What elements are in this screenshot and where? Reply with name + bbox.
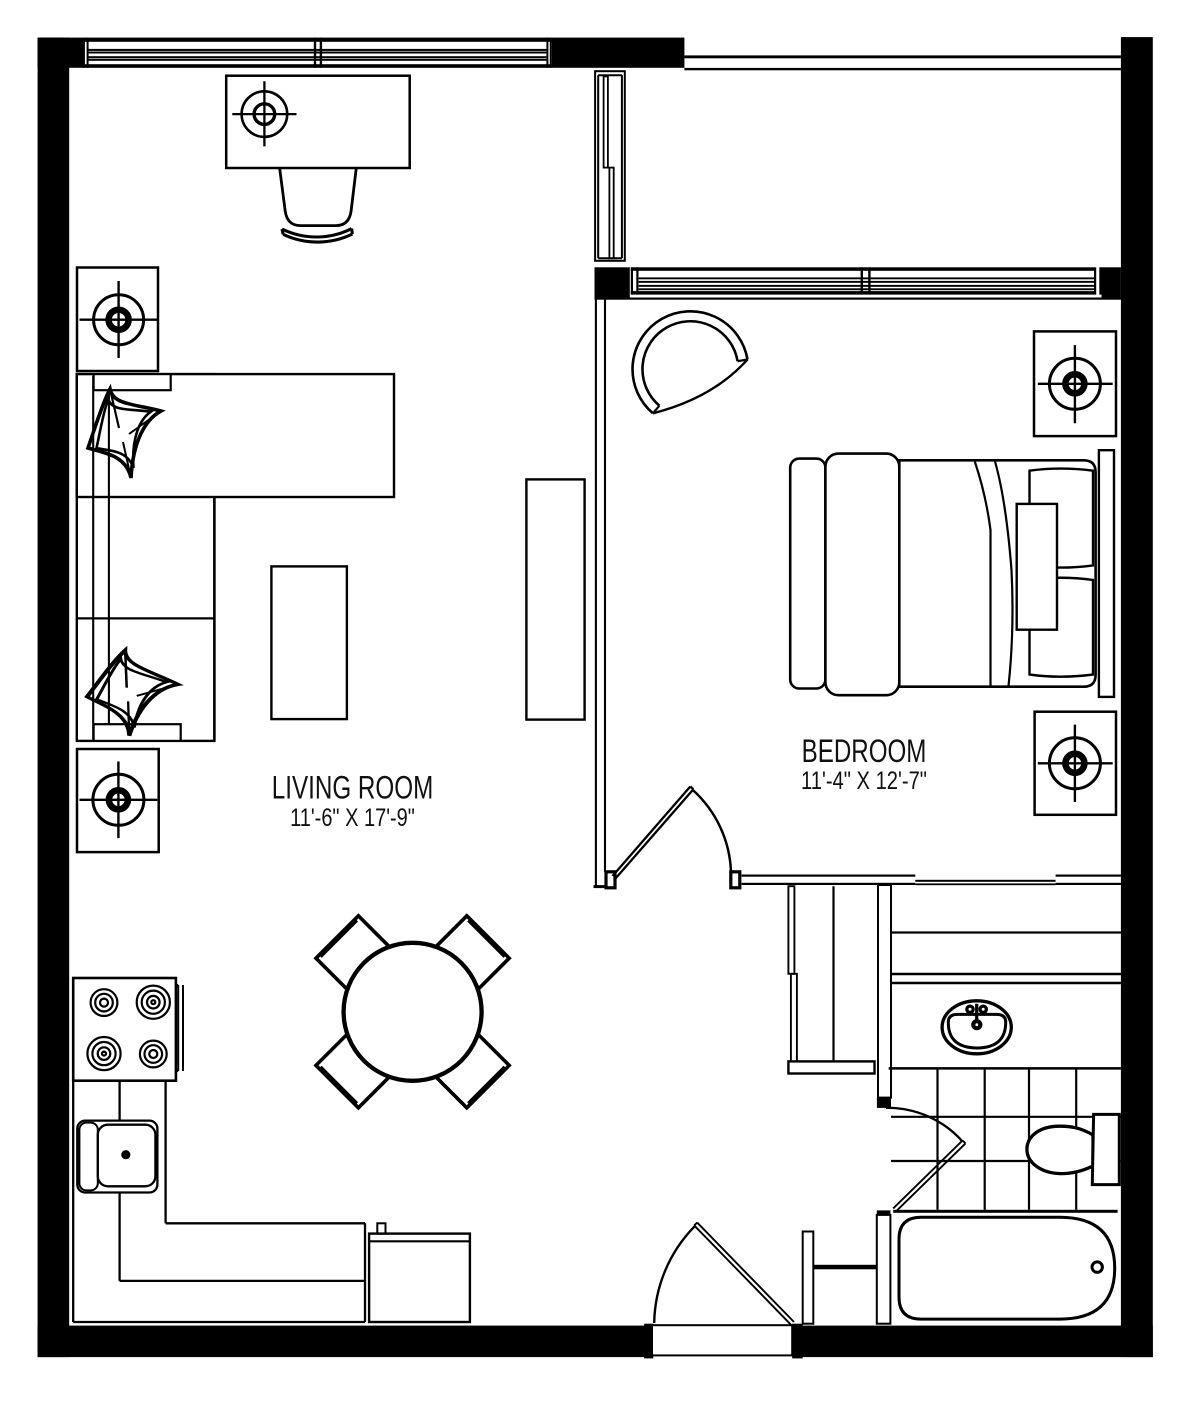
svg-text:11'-6" X 17'-9": 11'-6" X 17'-9" <box>290 804 415 832</box>
svg-text:LIVING ROOM: LIVING ROOM <box>272 770 434 806</box>
svg-text:11'-4" X 12'-7": 11'-4" X 12'-7" <box>801 767 927 795</box>
svg-text:BEDROOM: BEDROOM <box>802 733 927 769</box>
